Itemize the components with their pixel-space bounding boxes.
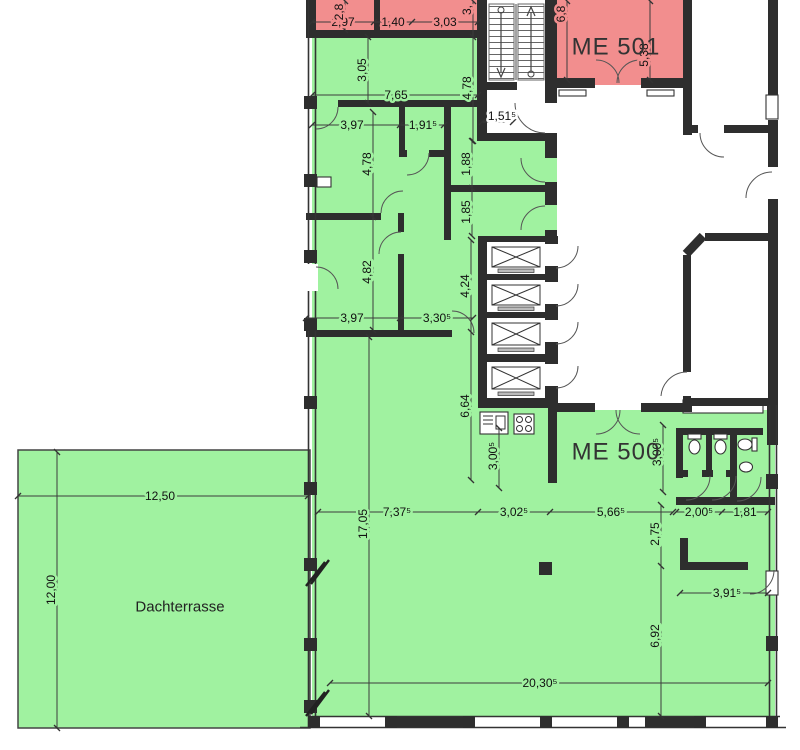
door-arc: [556, 246, 578, 268]
elevator-block: [478, 236, 558, 408]
wall-fixture: [317, 177, 331, 187]
dim-label: 12,50: [145, 489, 175, 503]
dim-label: 17,05: [356, 509, 370, 539]
window-sill: [559, 90, 586, 96]
dim-label: 20,30⁵: [522, 676, 557, 690]
dim-label: 1,91⁵: [409, 118, 437, 132]
free-column: [539, 562, 552, 575]
dim-label: 3,30⁵: [423, 311, 451, 325]
terrace-label: Dachterrasse: [135, 599, 224, 616]
kitchen-sink-icon: [480, 412, 508, 434]
dim-label: 3,: [460, 5, 474, 15]
unit-label-me501: ME 501: [572, 34, 661, 61]
dim-label: 3,97: [340, 118, 364, 132]
dim-label: 4,24: [458, 274, 472, 298]
window-sill: [647, 90, 674, 96]
dim-label: 7,37⁵: [383, 505, 411, 519]
toilet-icon: [738, 438, 757, 451]
floor-plan-page: 2,97 1,40 3,03 2,8 3, 6,8 5,38 3,05 7,65…: [0, 0, 800, 750]
sink-icon: [740, 462, 753, 472]
elevator-icon: [487, 318, 545, 354]
elevator-icon: [487, 362, 545, 398]
door-arc: [661, 372, 687, 396]
dim-label: 1,85: [459, 200, 473, 224]
dim-label: 2,75: [648, 522, 662, 546]
dim-label: 3,02⁵: [500, 505, 528, 519]
stairs-icon: [489, 4, 544, 80]
dim-label: 12,00: [44, 575, 58, 605]
dim-label: 2,8: [332, 3, 346, 20]
left-door-gap: [303, 264, 318, 291]
door-arc: [515, 103, 545, 133]
dim-label: 4,78: [460, 76, 474, 100]
dim-label: 3,97: [340, 311, 364, 325]
window-segment: [766, 95, 778, 119]
dim-label: 6,92: [648, 624, 662, 648]
door-arc: [700, 133, 724, 157]
stove-icon: [514, 414, 534, 434]
dim-label: 4,82: [360, 260, 374, 284]
dim-label: 2,00⁵: [685, 505, 713, 519]
dim-label: 7,65: [384, 88, 408, 102]
me500-area-west: [312, 37, 478, 717]
dim-label: 1,40: [381, 15, 405, 29]
dim-label: 3,00⁵: [486, 442, 500, 470]
toilet-icon: [714, 434, 727, 454]
window-segment: [766, 571, 778, 595]
dim-label: 1,81: [733, 505, 757, 519]
dim-label: 5,66⁵: [597, 505, 625, 519]
door-arc: [556, 322, 578, 344]
dim-label: 3,03: [433, 15, 457, 29]
elevator-icon: [487, 280, 545, 312]
floor-plan-svg: 2,97 1,40 3,03 2,8 3, 6,8 5,38 3,05 7,65…: [0, 0, 800, 750]
toilet-icon: [688, 434, 701, 454]
dim-label: 4,78: [360, 152, 374, 176]
elevator-icon: [487, 242, 545, 274]
dim-label: 3,05: [355, 58, 369, 82]
chamfer-wall: [686, 236, 703, 254]
door-arc: [556, 366, 578, 388]
dim-label: 3,91⁵: [713, 586, 741, 600]
dim-label: 6,64: [458, 394, 472, 418]
door-arc: [556, 284, 578, 306]
dim-label: 1,51⁵: [488, 109, 516, 123]
me500-area-wc: [676, 410, 775, 505]
dim-label: 6,8: [554, 5, 568, 22]
unit-label-me500: ME 500: [572, 439, 661, 466]
dim-label: 1,88: [459, 152, 473, 176]
